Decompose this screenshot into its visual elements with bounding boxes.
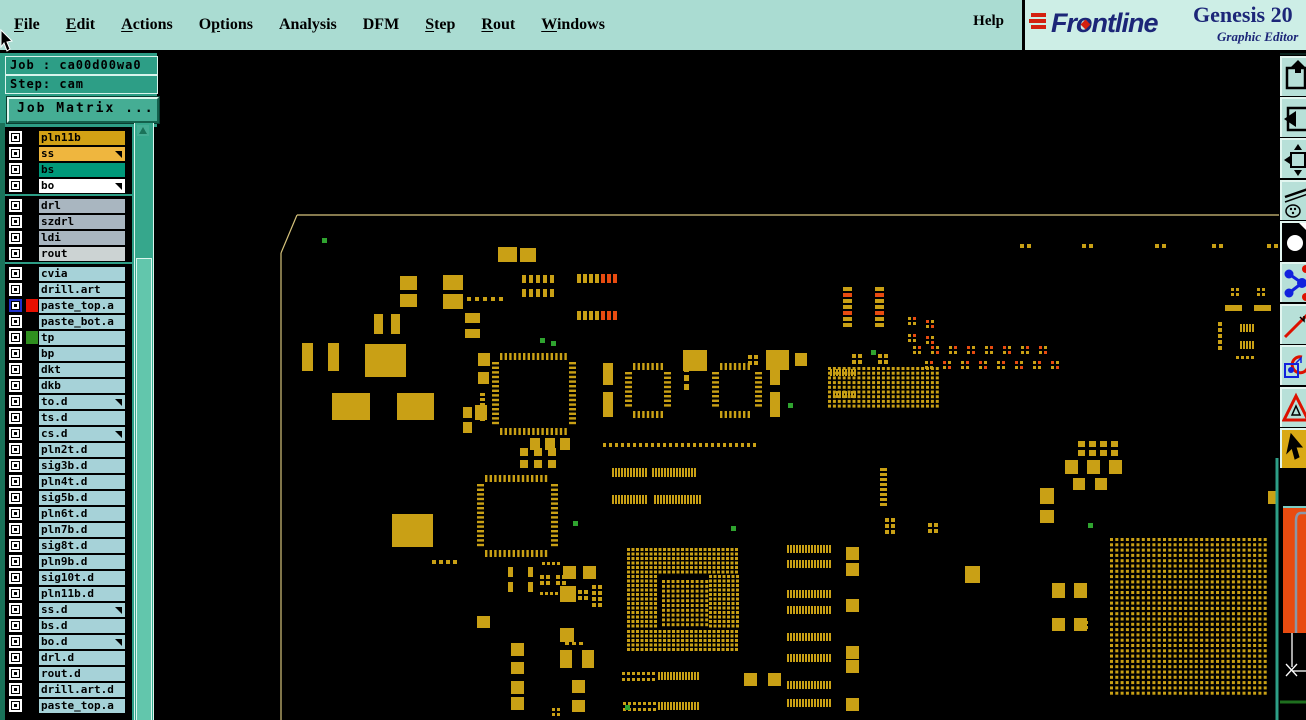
step-name-field: Step: cam	[5, 75, 158, 94]
menu-options[interactable]: Options	[199, 16, 253, 34]
layer-checkbox[interactable]	[9, 571, 22, 584]
layer-label[interactable]: cvia	[39, 267, 125, 281]
layer-arrow-icon	[115, 183, 122, 190]
layer-checkbox[interactable]	[9, 411, 22, 424]
layer-checkbox[interactable]	[9, 379, 22, 392]
layer-row-szdrl: szdrl	[5, 215, 132, 229]
layer-label[interactable]: pln7b.d	[39, 523, 125, 537]
layer-row-tp: tp	[5, 331, 132, 345]
layer-list: pln11bssbsbodrlszdrlldiroutcviadrill.art…	[5, 125, 134, 720]
layer-label[interactable]: ts.d	[39, 411, 125, 425]
layer-checkbox[interactable]	[9, 443, 22, 456]
layer-label[interactable]: pln2t.d	[39, 443, 125, 457]
layer-label[interactable]: to.d	[39, 395, 125, 409]
layer-row-pln9b.d: pln9b.d	[5, 555, 132, 569]
layer-label[interactable]: bo	[39, 179, 125, 193]
pointer-select-icon[interactable]	[1280, 428, 1306, 468]
layer-row-sig10t.d: sig10t.d	[5, 571, 132, 585]
product-subtitle: Graphic Editor	[1217, 29, 1298, 45]
layer-row-pln6t.d: pln6t.d	[5, 507, 132, 521]
layer-row-dkt: dkt	[5, 363, 132, 377]
layer-checkbox[interactable]	[9, 331, 22, 344]
layer-checkbox[interactable]	[9, 603, 22, 616]
product-title: Genesis 20	[1193, 2, 1293, 28]
netlist-icon[interactable]	[1280, 262, 1306, 302]
layer-label[interactable]: bs	[39, 163, 125, 177]
tool-palette	[1280, 53, 1306, 462]
layer-checkbox[interactable]	[9, 667, 22, 680]
layer-group-separator	[5, 262, 132, 264]
layer-checkbox[interactable]	[9, 523, 22, 536]
layer-row-pln4t.d: pln4t.d	[5, 475, 132, 489]
layer-checkbox[interactable]	[9, 459, 22, 472]
logo-stripe	[1029, 19, 1046, 23]
logo-stripe	[1031, 25, 1046, 29]
layer-label[interactable]: cs.d	[39, 427, 125, 441]
layer-label[interactable]: sig5b.d	[39, 491, 125, 505]
sidebar: Job : ca00d00wa0 Step: cam Job Matrix ..…	[0, 53, 157, 720]
layer-checkbox[interactable]	[9, 347, 22, 360]
layer-label[interactable]: pln11b.d	[39, 587, 125, 601]
layer-label[interactable]: paste_bot.a	[39, 315, 125, 329]
layer-checkbox[interactable]	[9, 199, 22, 212]
pcb-canvas[interactable]	[0, 0, 1306, 720]
logo-stripe	[1031, 13, 1046, 17]
layer-label[interactable]: paste_top.a	[39, 699, 125, 713]
scrollbar-thumb[interactable]	[136, 258, 152, 720]
layer-label[interactable]: drl.d	[39, 651, 125, 665]
layer-label[interactable]: pln9b.d	[39, 555, 125, 569]
layer-row-pln11b: pln11b	[5, 131, 132, 145]
layer-row-cs.d: cs.d	[5, 427, 132, 441]
layer-color-swatch	[26, 331, 38, 344]
layer-label[interactable]: sig10t.d	[39, 571, 125, 585]
layer-label[interactable]: ldi	[39, 231, 125, 245]
layer-checkbox[interactable]	[9, 699, 22, 712]
layer-row-ldi: ldi	[5, 231, 132, 245]
menu-edit[interactable]: Edit	[66, 16, 95, 34]
layer-row-ss.d: ss.d	[5, 603, 132, 617]
layer-label[interactable]: drill.art	[39, 283, 125, 297]
layer-checkbox[interactable]	[9, 587, 22, 600]
menu-help[interactable]: Help	[973, 13, 1004, 30]
layer-label[interactable]: dkb	[39, 379, 125, 393]
layer-row-pln2t.d: pln2t.d	[5, 443, 132, 457]
layer-label[interactable]: paste_top.a	[39, 299, 125, 313]
frontline-logo: Frontline	[1051, 8, 1158, 39]
layer-checkbox[interactable]	[9, 619, 22, 632]
layer-label[interactable]: pln11b	[39, 131, 125, 145]
menu-rout[interactable]: Rout	[481, 16, 515, 34]
layer-checkbox[interactable]	[9, 215, 22, 228]
menu-windows[interactable]: Windows	[541, 16, 605, 34]
paste-up-icon[interactable]	[1280, 56, 1306, 96]
layer-label[interactable]: bp	[39, 347, 125, 361]
application-window: { "window": { "brand": "Frontline", "pro…	[0, 0, 1306, 720]
menu-dfm[interactable]: DFM	[363, 16, 399, 34]
layer-row-bo: bo	[5, 179, 132, 193]
scroll-up-icon[interactable]	[137, 125, 149, 136]
layer-row-paste_top.a: paste_top.a	[5, 699, 132, 713]
menu-analysis[interactable]: Analysis	[279, 16, 337, 34]
layer-row-paste_top.a: paste_top.a	[5, 299, 132, 313]
layer-row-dkb: dkb	[5, 379, 132, 393]
measure-icon[interactable]	[1280, 304, 1306, 344]
layer-row-bs: bs	[5, 163, 132, 177]
menu-step[interactable]: Step	[425, 16, 455, 34]
layer-checkbox[interactable]	[9, 539, 22, 552]
layer-row-rout.d: rout.d	[5, 667, 132, 681]
layer-label[interactable]: ss.d	[39, 603, 125, 617]
layer-arrow-icon	[115, 431, 122, 438]
layer-row-drl: drl	[5, 199, 132, 213]
layer-row-pln11b.d: pln11b.d	[5, 587, 132, 601]
layer-row-bp: bp	[5, 347, 132, 361]
layer-checkbox[interactable]	[9, 555, 22, 568]
mouse-cursor	[0, 28, 20, 56]
layer-checkbox[interactable]	[9, 299, 22, 312]
layer-checkbox[interactable]	[9, 363, 22, 376]
layer-scrollbar[interactable]	[134, 123, 154, 720]
layer-row-to.d: to.d	[5, 395, 132, 409]
layer-row-sig3b.d: sig3b.d	[5, 459, 132, 473]
layer-checkbox[interactable]	[9, 395, 22, 408]
layer-checkbox[interactable]	[9, 247, 22, 260]
layer-row-drill.art.d: drill.art.d	[5, 683, 132, 697]
logo-panel: Frontline Genesis 20 Graphic Editor	[1025, 0, 1306, 53]
paste-left-icon[interactable]	[1280, 97, 1306, 137]
layer-label[interactable]: szdrl	[39, 215, 125, 229]
layer-row-ss: ss	[5, 147, 132, 161]
layer-label[interactable]: drill.art.d	[39, 683, 125, 697]
layer-label[interactable]: rout	[39, 247, 125, 261]
layer-arrow-icon	[115, 399, 122, 406]
layer-row-bs.d: bs.d	[5, 619, 132, 633]
pcb-pads-layer	[281, 215, 1306, 720]
layer-label[interactable]: bo.d	[39, 635, 125, 649]
fit-window-icon[interactable]	[1280, 138, 1306, 178]
layer-label[interactable]: sig8t.d	[39, 539, 125, 553]
layer-checkbox[interactable]	[9, 231, 22, 244]
job-matrix-button[interactable]: Job Matrix ...	[7, 97, 159, 123]
layer-label[interactable]: pln4t.d	[39, 475, 125, 489]
layer-checkbox[interactable]	[9, 475, 22, 488]
layer-checkbox[interactable]	[9, 131, 22, 144]
layer-checkbox[interactable]	[9, 491, 22, 504]
layer-row-cvia: cvia	[5, 267, 132, 281]
layer-label[interactable]: pln6t.d	[39, 507, 125, 521]
layer-color-swatch	[26, 299, 38, 312]
layer-checkbox[interactable]	[9, 267, 22, 280]
layer-row-bo.d: bo.d	[5, 635, 132, 649]
drc-marker-icon[interactable]	[1280, 387, 1306, 427]
layer-checkbox[interactable]	[9, 315, 22, 328]
layer-arrow-icon	[115, 607, 122, 614]
layer-checkbox[interactable]	[9, 427, 22, 440]
layer-checkbox[interactable]	[9, 283, 22, 296]
draw-tools-icon[interactable]	[1280, 180, 1306, 220]
layer-row-pln7b.d: pln7b.d	[5, 523, 132, 537]
layer-checkbox[interactable]	[9, 147, 22, 160]
menu-actions[interactable]: Actions	[121, 16, 173, 34]
layer-row-paste_bot.a: paste_bot.a	[5, 315, 132, 329]
layer-checkbox[interactable]	[9, 179, 22, 192]
pad-display-icon[interactable]	[1280, 221, 1306, 261]
layer-row-sig5b.d: sig5b.d	[5, 491, 132, 505]
layer-checkbox[interactable]	[9, 651, 22, 664]
layer-group-separator	[5, 194, 132, 196]
layer-label[interactable]: drl	[39, 199, 125, 213]
layer-label[interactable]: sig3b.d	[39, 459, 125, 473]
layer-checkbox[interactable]	[9, 635, 22, 648]
layer-row-rout: rout	[5, 247, 132, 261]
layer-arrow-icon	[115, 639, 122, 646]
layer-label[interactable]: ss	[39, 147, 125, 161]
layer-label[interactable]: bs.d	[39, 619, 125, 633]
symbol-origin-icon[interactable]	[1280, 345, 1306, 385]
layer-checkbox[interactable]	[9, 683, 22, 696]
layer-row-drill.art: drill.art	[5, 283, 132, 297]
layer-arrow-icon	[115, 151, 122, 158]
layer-row-ts.d: ts.d	[5, 411, 132, 425]
layer-label[interactable]: rout.d	[39, 667, 125, 681]
layer-label[interactable]: dkt	[39, 363, 125, 377]
menu-bar: FileEditActionsOptionsAnalysisDFMStepRou…	[0, 0, 1022, 53]
layer-checkbox[interactable]	[9, 163, 22, 176]
job-name-field: Job : ca00d00wa0	[5, 56, 158, 75]
layer-row-drl.d: drl.d	[5, 651, 132, 665]
layer-row-sig8t.d: sig8t.d	[5, 539, 132, 553]
layer-label[interactable]: tp	[39, 331, 125, 345]
layer-checkbox[interactable]	[9, 507, 22, 520]
